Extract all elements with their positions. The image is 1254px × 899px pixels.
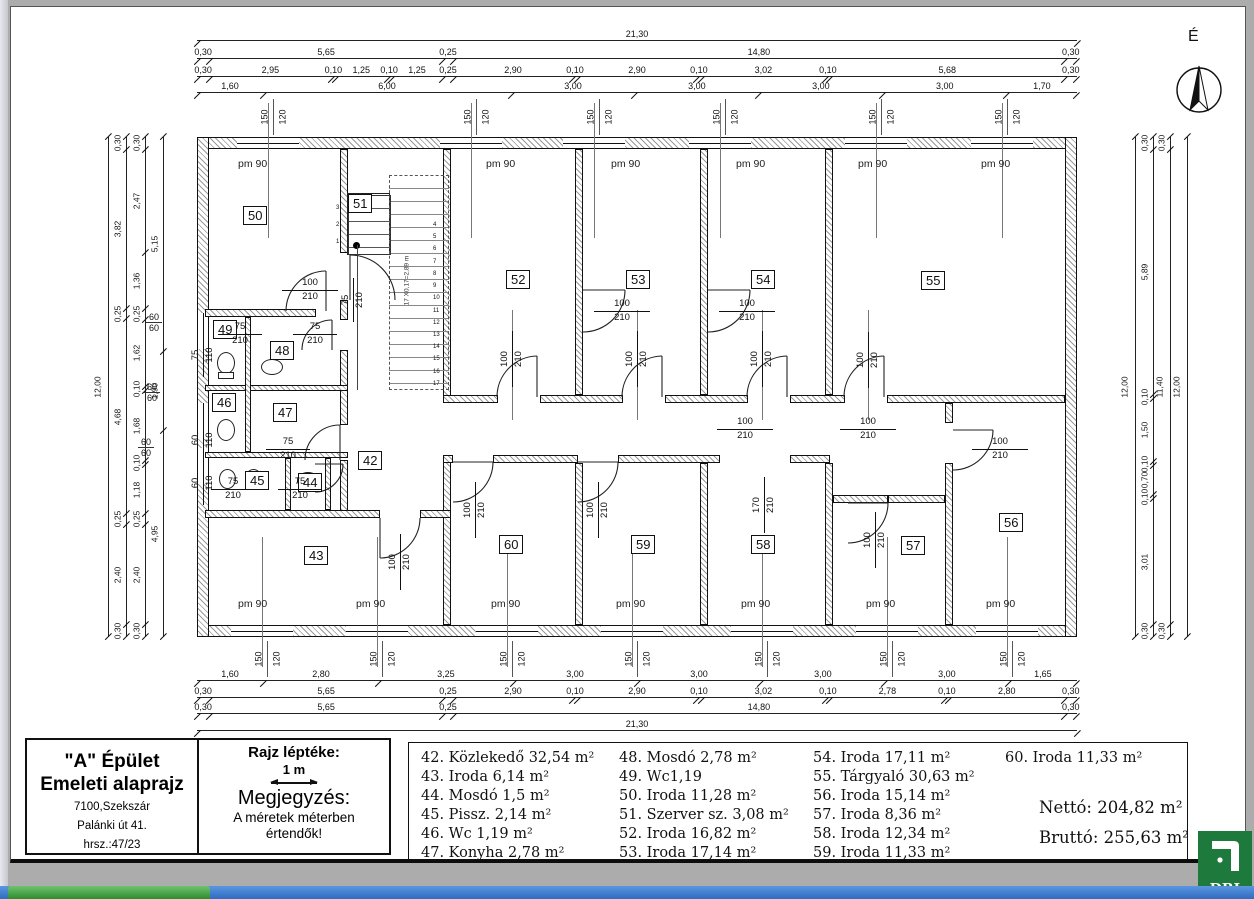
dim-segment: 12,00 [1174, 137, 1187, 637]
list-item: 60. Iroda 11,33 m² [1005, 749, 1142, 768]
scale-note: Rajz léptéke: 1 m Megjegyzés: A méretek … [199, 740, 389, 853]
dim-segment: 4,68 [113, 319, 126, 514]
window-size-label: 150120 [996, 641, 1029, 677]
dim-segment: 0,30 [197, 43, 209, 58]
start-button[interactable] [8, 886, 210, 899]
door-size-label: 75210 [278, 477, 322, 501]
title-block: "A" Épület Emeleti alaprajz 7100,Szekszá… [25, 738, 391, 855]
drawing-title: Emeleti alaprajz [27, 773, 197, 796]
dim-segment: 2,95 [209, 61, 331, 76]
dim-segment: 21,30 [197, 716, 1077, 730]
list-item: 43. Iroda 6,14 m² [421, 768, 594, 787]
door-size-label: 75210 [218, 322, 262, 346]
dim-segment: 0,25 [443, 61, 453, 76]
window-size-label: 6060 [146, 312, 162, 333]
dim-segment: 2,90 [453, 61, 573, 76]
window-size-label: 60110 [191, 418, 215, 462]
door-size-label: 100210 [750, 331, 774, 387]
room-label-56: 56 [999, 513, 1023, 532]
dim-segment: 1,25 [335, 61, 387, 76]
parapet-label: pm 90 [858, 158, 887, 170]
dim-chain-top-4: 1,606,003,003,003,003,001,70 [197, 77, 1077, 93]
list-item: 54. Iroda 17,11 m² [813, 749, 975, 768]
room-label-59: 59 [631, 535, 655, 554]
gross-area: Bruttó: 255,63 m² [1039, 828, 1189, 847]
dim-segment: 2,80 [949, 683, 1065, 697]
compass-icon [1172, 60, 1226, 116]
window-size-label: 150120 [366, 641, 399, 677]
dim-segment: 2,90 [577, 61, 697, 76]
dim-segment: 3,00 [883, 77, 1007, 92]
door-size-label: 75210 [266, 437, 310, 461]
address-city: 7100,Szekszár [27, 800, 197, 815]
door-size-label: 100210 [388, 534, 412, 590]
list-item: 44. Mosdó 1,5 m² [421, 787, 594, 806]
sink [261, 359, 283, 375]
door-size-label: 100210 [282, 278, 338, 302]
dim-segment: 1,70 [1007, 77, 1077, 92]
desktop: { "north": {"label": "É"}, "title_block"… [0, 0, 1254, 899]
dim-segment: 0,30 [197, 61, 209, 76]
list-item: 56. Iroda 15,14 m² [813, 787, 975, 806]
door-size-label: 100210 [840, 417, 896, 441]
scale-title: Rajz léptéke: [199, 744, 389, 761]
door-size-label: 75210 [341, 278, 365, 322]
window-size-label: 75110 [191, 333, 215, 377]
dim-segment: 1,62 [132, 319, 145, 386]
room-legend: 42. Közlekedő 32,54 m²43. Iroda 6,14 m²4… [408, 742, 1188, 860]
dim-segment: 0,30 [1065, 61, 1077, 76]
legend-column-1: 42. Közlekedő 32,54 m²43. Iroda 6,14 m²4… [421, 749, 594, 863]
parapet-label: pm 90 [741, 598, 770, 610]
dim-chain-top-2: 0,305,650,2514,800,30 [197, 43, 1077, 59]
room-label-48: 48 [270, 341, 294, 360]
dim-segment: 0,30 [132, 137, 145, 149]
list-item: 51. Szerver sz. 3,08 m² [619, 806, 789, 825]
room-label-52: 52 [506, 270, 530, 289]
dim-segment: 0,30 [1065, 683, 1077, 697]
dim-segment: 0,30 [1140, 137, 1153, 150]
door-size-label: 75210 [211, 477, 255, 501]
dim-segment: 3,01 [1140, 499, 1153, 624]
legend-column-3: 54. Iroda 17,11 m²55. Tárgyaló 30,63 m²5… [813, 749, 975, 863]
window-edge [0, 0, 8, 899]
door-size-label: 100210 [856, 332, 880, 388]
room-label-47: 47 [273, 403, 297, 422]
dim-segment: 12,00 [1122, 137, 1135, 637]
list-item: 52. Iroda 16,82 m² [619, 825, 789, 844]
dim-chain-left-1: 12,00 [95, 137, 109, 637]
dim-segment: 1,50 [1140, 399, 1153, 462]
door-size-label: 100210 [719, 299, 775, 323]
dim-chain-bottom-3: 0,305,650,2514,800,30 [197, 699, 1077, 714]
list-item: 49. Wc1,19 [619, 768, 789, 787]
window-size-label: 150120 [251, 641, 284, 677]
floor-plan: 321 4567891011121314151617 17 X0,17=2,89… [197, 137, 1077, 637]
door-arcs [197, 137, 1077, 637]
list-item: 58. Iroda 12,34 m² [813, 825, 975, 844]
parapet-label: pm 90 [356, 598, 385, 610]
parapet-label: pm 90 [616, 598, 645, 610]
dim-segment: 11,40 [1157, 150, 1170, 625]
parapet-label: pm 90 [491, 598, 520, 610]
dim-segment: 3,02 [701, 61, 826, 76]
dim-segment: 1,60 [197, 77, 263, 92]
parapet-label: pm 90 [486, 158, 515, 170]
room-label-51: 51 [348, 194, 372, 213]
dim-chain-right-1: 12,00 [1122, 137, 1136, 637]
dim-segment: 0,25 [132, 514, 145, 524]
dim-chain-right-4: 12,00 [1174, 137, 1188, 637]
north-label: É [1188, 28, 1199, 46]
project-info: "A" Épület Emeleti alaprajz 7100,Szekszá… [27, 740, 199, 853]
note-line: A méretek méterben [199, 810, 389, 826]
room-label-50: 50 [243, 206, 267, 225]
room-label-46: 46 [212, 393, 236, 412]
door-size-label: 100210 [625, 331, 649, 387]
window-size-label: 6060 [144, 382, 160, 403]
dim-segment: 3,00 [759, 77, 883, 92]
dim-segment: 0,25 [113, 514, 126, 524]
door-size-label: 100210 [586, 482, 610, 538]
dim-segment: 14,80 [453, 43, 1064, 58]
door-size-label: 170210 [752, 477, 776, 533]
building-title: "A" Épület [27, 750, 197, 773]
window-size-label: 150120 [751, 641, 784, 677]
parapet-label: pm 90 [736, 158, 765, 170]
list-item: 59. Iroda 11,33 m² [813, 844, 975, 863]
window-size-label: 150120 [583, 99, 616, 135]
room-label-53: 53 [626, 270, 650, 289]
list-item: 55. Tárgyaló 30,63 m² [813, 768, 975, 787]
dim-segment: 1,18 [132, 465, 145, 514]
dim-segment: 0,25 [443, 699, 453, 713]
address-street: Palánki út 41. [27, 819, 197, 834]
parapet-label: pm 90 [866, 598, 895, 610]
dim-segment: 3,82 [113, 150, 126, 309]
dim-chain-right-3: 0,3011,400,30 [1157, 137, 1171, 637]
list-item: 50. Iroda 11,28 m² [619, 787, 789, 806]
dim-segment: 0,30 [113, 137, 126, 150]
dim-segment: 4,95 [150, 431, 163, 637]
dim-segment: 2,40 [132, 525, 145, 625]
dim-segment: 3,00 [511, 77, 635, 92]
parapet-label: pm 90 [238, 598, 267, 610]
window-size-label: 150120 [876, 641, 909, 677]
dim-chain-left-2: 0,303,820,254,680,252,400,30 [113, 137, 127, 637]
scale-value: 1 m [199, 762, 389, 777]
dim-segment: 0,30 [1065, 43, 1077, 58]
dim-segment: 5,65 [209, 699, 442, 713]
door-size-label: 100210 [863, 512, 887, 568]
room-label-43: 43 [304, 546, 328, 565]
net-area: Nettó: 204,82 m² [1039, 798, 1182, 817]
note-title: Megjegyzés: [199, 787, 389, 810]
window-size-label: 150120 [991, 99, 1024, 135]
dim-segment: 3,00 [513, 666, 637, 680]
dim-segment: 14,80 [453, 699, 1064, 713]
dim-segment: 0,30 [1157, 137, 1170, 150]
parapet-label: pm 90 [986, 598, 1015, 610]
dim-segment: 1,36 [132, 252, 145, 309]
list-item: 45. Pissz. 2,14 m² [421, 806, 594, 825]
toilet [217, 419, 235, 441]
list-item: 57. Iroda 8,36 m² [813, 806, 975, 825]
dim-segment: 21,30 [197, 25, 1077, 40]
dim-segment: 12,00 [95, 137, 108, 637]
dim-segment: 3,00 [635, 77, 759, 92]
dim-segment: 0,30 [132, 624, 145, 636]
dim-segment: 2,40 [113, 525, 126, 625]
dim-segment: 0,30 [197, 683, 209, 697]
parapet-label: pm 90 [238, 158, 267, 170]
door-icon [1198, 831, 1252, 875]
door-size-label: 100210 [500, 331, 524, 387]
toilet-tank [218, 372, 234, 379]
parcel-number: hrsz.:47/23 [27, 838, 197, 853]
room-label-55: 55 [921, 271, 945, 290]
parapet-label: pm 90 [981, 158, 1010, 170]
window-size-label: 150120 [621, 641, 654, 677]
dim-chain-bottom-2: 0,305,650,252,900,102,900,103,020,102,78… [197, 683, 1077, 698]
room-label-60: 60 [499, 535, 523, 554]
legend-column-4: 60. Iroda 11,33 m² [1005, 749, 1142, 768]
dim-segment: 0,25 [132, 309, 145, 319]
door-size-label: 75210 [293, 322, 337, 346]
dim-segment: 3,00 [637, 666, 761, 680]
window-size-label: 150120 [865, 99, 898, 135]
window-size-label: 6060 [138, 437, 154, 458]
dim-segment: 3,02 [701, 683, 826, 697]
toilet [217, 352, 235, 374]
dim-chain-top-3: 0,302,950,101,250,101,250,252,900,102,90… [197, 61, 1077, 77]
room-label-57: 57 [901, 536, 925, 555]
list-item: 47. Konyha 2,78 m² [421, 844, 594, 863]
dim-segment: 0,30 [113, 625, 126, 638]
list-item: 46. Wc 1,19 m² [421, 825, 594, 844]
dim-segment: 6,00 [263, 77, 511, 92]
door-size-label: 100210 [463, 482, 487, 538]
room-label-58: 58 [751, 535, 775, 554]
dim-segment: 5,68 [830, 61, 1065, 76]
list-item: 42. Közlekedő 32,54 m² [421, 749, 594, 768]
door-size-label: 100210 [594, 299, 650, 323]
scale-bar-icon [271, 782, 317, 784]
door-size-label: 100210 [972, 437, 1028, 461]
note-line: értendők! [199, 826, 389, 842]
dim-segment: 2,90 [453, 683, 573, 697]
dim-segment: 1,25 [391, 61, 443, 76]
list-item: 53. Iroda 17,14 m² [619, 844, 789, 863]
dim-segment: 0,25 [113, 309, 126, 319]
dim-segment: 2,78 [830, 683, 945, 697]
dim-chain-top-1: 21,30 [197, 25, 1077, 41]
dim-segment: 0,25 [443, 43, 453, 58]
dim-segment: 5,89 [1140, 150, 1153, 395]
dim-segment: 0,25 [443, 683, 453, 697]
window-size-label: 60110 [191, 461, 215, 505]
dim-chain-right-2: 0,305,890,101,500,100,700,103,010,30 [1140, 137, 1154, 637]
room-label-42: 42 [358, 451, 382, 470]
list-item: 48. Mosdó 2,78 m² [619, 749, 789, 768]
window-size-label: 150120 [709, 99, 742, 135]
door-size-label: 100210 [717, 417, 773, 441]
window-size-label: 150120 [257, 99, 290, 135]
dim-segment: 0,30 [1065, 699, 1077, 713]
window-size-label: 150120 [496, 641, 529, 677]
dim-segment: 5,65 [209, 683, 442, 697]
dim-segment: 0,30 [1140, 625, 1153, 638]
dim-chain-bottom-4: 21,30 [197, 716, 1077, 731]
window-size-label: 150120 [460, 99, 493, 135]
dim-segment: 2,47 [132, 149, 145, 252]
room-label-54: 54 [751, 270, 775, 289]
dim-segment: 0,30 [197, 699, 209, 713]
dim-segment: 0,30 [1157, 625, 1170, 638]
dim-segment: 5,65 [209, 43, 442, 58]
legend-column-2: 48. Mosdó 2,78 m²49. Wc1,1950. Iroda 11,… [619, 749, 789, 863]
dim-segment: 2,90 [577, 683, 697, 697]
parapet-label: pm 90 [611, 158, 640, 170]
